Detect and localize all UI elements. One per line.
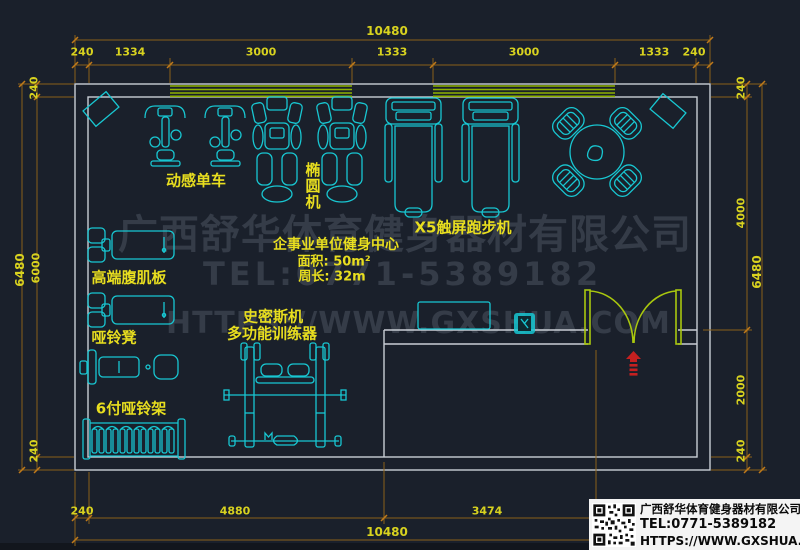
dimension-ticks [19, 37, 765, 543]
elliptical-machine [251, 97, 303, 202]
water-dispenser [514, 313, 535, 334]
card-company: 广西舒华体育健身器材有限公司 [640, 501, 800, 517]
dim-top-seg: 1333 [377, 46, 408, 59]
dim-bottom-seg: 3474 [472, 505, 503, 518]
dim-left-seg: 240 [28, 440, 41, 463]
dim-right-seg: 240 [735, 77, 748, 100]
footer-contact-card: 广西舒华体育健身器材有限公司 TEL:0771-5389182 HTTPS://… [589, 499, 800, 550]
dumbbell-pair [162, 427, 174, 454]
window-band-right [433, 86, 615, 96]
dim-top-seg: 240 [71, 46, 94, 59]
double-door [585, 290, 681, 344]
label-dumbbell-bench: 哑铃凳 [91, 327, 136, 348]
dim-right-overall: 6480 [750, 255, 764, 288]
qr-code-icon [592, 503, 636, 547]
dim-top-overall: 10480 [366, 24, 408, 38]
dumbbell-pair [134, 427, 146, 454]
dumbbell-pair [106, 427, 118, 454]
label-ab-board: 高端腹肌板 [91, 267, 166, 288]
window-band-left [170, 86, 352, 96]
cad-floorplan-canvas: 广西舒华体育健身器材有限公司 TEL:0771-5389182 HTTPS://… [0, 0, 800, 550]
dumbbell-pair [120, 427, 132, 454]
dim-right-seg: 240 [735, 440, 748, 463]
spin-bike [145, 106, 185, 166]
label-elliptical: 椭圆机 [303, 162, 324, 210]
card-tel: TEL:0771-5389182 [640, 517, 800, 533]
dim-left-seg: 240 [28, 77, 41, 100]
dim-top-seg: 1334 [115, 46, 146, 59]
dim-right-seg: 4000 [735, 198, 748, 229]
label-dumbbell-rack: 6付哑铃架 [96, 398, 166, 419]
dim-left-overall: 6480 [13, 253, 27, 286]
card-url: HTTPS://WWW.GXSHUA.COM [640, 533, 800, 549]
dim-left-seg: 6000 [30, 253, 43, 284]
spin-bike [205, 106, 245, 166]
room-perimeter: 周长: 32m [298, 266, 365, 285]
dumbbell-rack [83, 419, 185, 459]
entrance-symbol [626, 351, 641, 376]
treadmill [462, 98, 519, 217]
label-multi-trainer: 多功能训练器 [227, 323, 317, 344]
treadmill [385, 98, 442, 217]
counter-bench [418, 302, 490, 329]
dim-top-seg: 240 [683, 46, 706, 59]
dim-right-seg: 2000 [735, 375, 748, 406]
dumbbell-pair [92, 427, 104, 454]
smith-machine [224, 343, 346, 447]
dim-top-seg: 3000 [509, 46, 540, 59]
label-spin-bike: 动感单车 [166, 170, 226, 191]
dumbbell-pair [148, 427, 160, 454]
label-treadmill: X5触屏跑步机 [414, 217, 511, 238]
speaker-icon [650, 94, 686, 129]
dim-bottom-seg: 4880 [220, 505, 251, 518]
dim-bottom-overall: 10480 [366, 525, 408, 539]
ab-board [88, 293, 174, 327]
dim-top-seg: 3000 [246, 46, 277, 59]
ab-board [88, 228, 174, 262]
elliptical-machine [316, 97, 368, 202]
dumbbell-bench [80, 350, 178, 384]
dim-top-seg: 1333 [639, 46, 670, 59]
dim-bottom-seg: 240 [71, 505, 94, 518]
table-and-chairs [549, 104, 645, 200]
